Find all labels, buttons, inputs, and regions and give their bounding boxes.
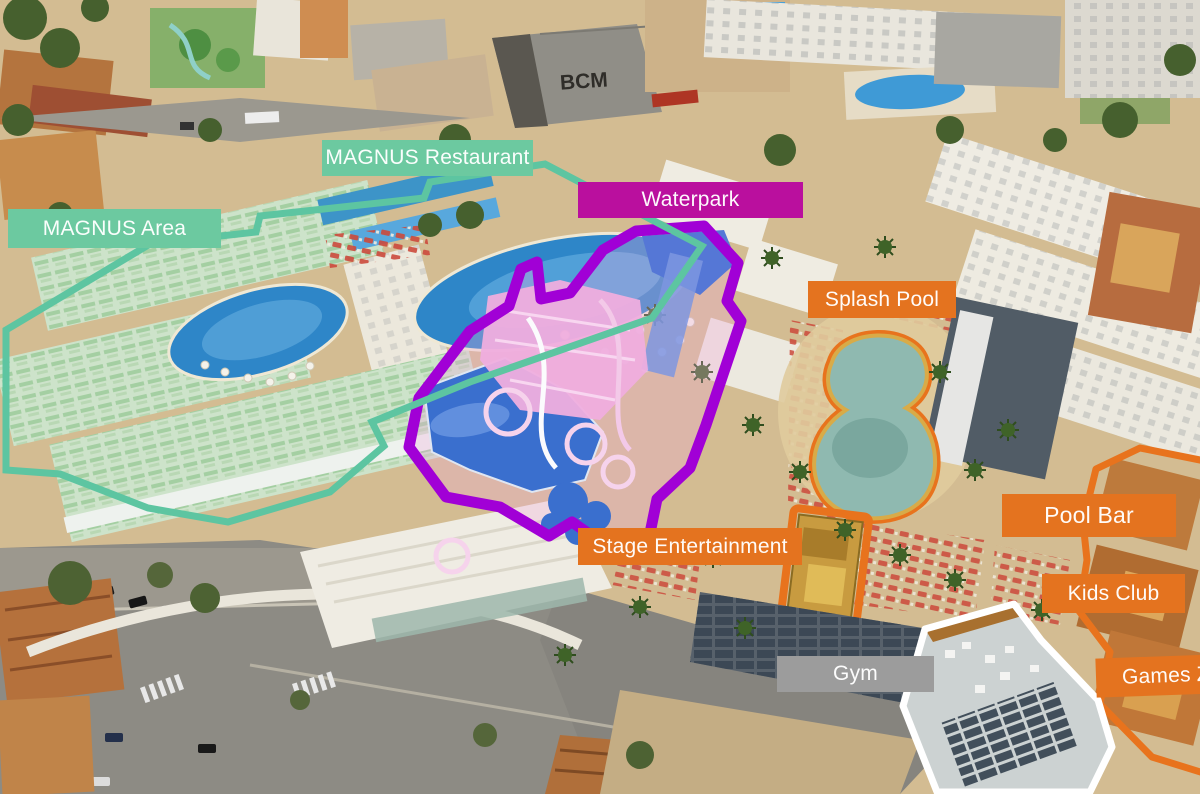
label-waterpark: Waterpark xyxy=(578,182,803,218)
label-gym: Gym xyxy=(777,656,934,692)
bcm-building: BCM xyxy=(492,24,662,128)
label-magnus-area: MAGNUS Area xyxy=(8,209,221,248)
bcm-roof-sign: BCM xyxy=(559,68,608,94)
label-splash-pool: Splash Pool xyxy=(808,281,956,318)
resort-aerial-photo: BCM xyxy=(0,0,1200,794)
annotated-resort-map: BCM xyxy=(0,0,1200,794)
label-pool-bar: Pool Bar xyxy=(1002,494,1176,537)
label-games-zone: Games Z xyxy=(1095,653,1200,697)
label-magnus-restaurant: MAGNUS Restaurant xyxy=(322,140,533,176)
label-kids-club: Kids Club xyxy=(1042,574,1185,613)
label-stage-entertainment: Stage Entertainment xyxy=(578,528,802,565)
